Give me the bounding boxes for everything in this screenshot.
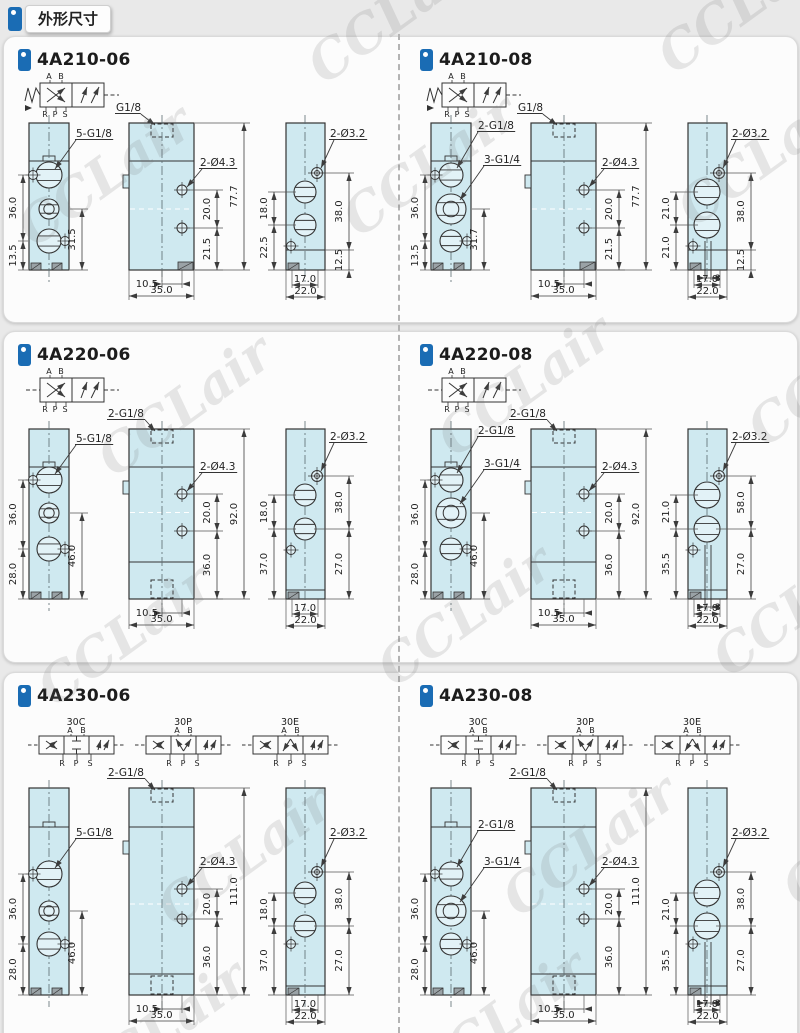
port-letter: P [455, 405, 460, 414]
dim-text: 18.0 [259, 197, 270, 219]
port-label: 2-G1/8 [510, 767, 546, 779]
model-number: 4A220-08 [439, 345, 533, 365]
right-view: 2-Ø3.218.037.038.027.017.022.0 [259, 780, 367, 1025]
valve-symbol: ABRPS [428, 367, 521, 414]
port-letter: A [46, 367, 52, 376]
middle-view: 2-G1/82-Ø4.320.036.0111.010.535.0 [107, 767, 250, 1025]
panel-row: 4A230-06 30CABRPS30PABRPS30EABRPS36.028.… [3, 672, 798, 1033]
dim-text: 77.7 [631, 185, 642, 207]
port-label: 5-G1/8 [76, 433, 112, 445]
port-letter: P [53, 405, 58, 414]
dim-text: 35.0 [552, 285, 574, 296]
dimension-drawing: ABRPS36.028.046.05-G1/82-G1/82-Ø4.320.03… [4, 332, 400, 662]
model-number: 4A210-06 [37, 50, 131, 70]
port-label: 2-Ø4.3 [602, 461, 637, 473]
port-letter: R [675, 759, 681, 768]
dim-text: 35.5 [661, 553, 672, 575]
dim-text: 17.0 [696, 999, 718, 1010]
model-bullet-icon [18, 344, 31, 366]
dim-text: 35.5 [661, 949, 672, 971]
dim-text: 37.0 [259, 553, 270, 575]
dim-text: 17.0 [294, 603, 316, 614]
port-label: 2-Ø4.3 [200, 461, 235, 473]
valve-panel: 4A210-08 ABRPS36.013.531.72-G1/83-G1/4G1… [406, 37, 797, 322]
port-letter: R [59, 759, 65, 768]
port-letter: R [42, 405, 48, 414]
dim-text: 22.0 [294, 286, 316, 297]
port-label: 3-G1/4 [484, 856, 520, 868]
port-label: 3-G1/4 [484, 458, 520, 470]
port-letter: S [596, 759, 601, 768]
dim-text: 92.0 [229, 503, 240, 525]
valve-panel: 4A220-06 ABRPS36.028.046.05-G1/82-G1/82-… [4, 332, 400, 662]
middle-view: G1/82-Ø4.320.021.577.710.535.0 [517, 102, 652, 300]
dim-text: 36.0 [8, 197, 19, 219]
port-letter: B [589, 726, 595, 735]
port-letter: A [448, 367, 454, 376]
port-label: 2-Ø3.2 [330, 431, 365, 443]
dim-text: 21.0 [661, 197, 672, 219]
dim-text: 20.0 [604, 501, 615, 523]
port-label: 2-Ø4.3 [602, 856, 637, 868]
port-label: 2-Ø3.2 [330, 827, 365, 839]
middle-view: 2-G1/82-Ø4.320.036.0111.010.535.0 [509, 767, 652, 1025]
dim-text: 38.0 [334, 200, 345, 222]
port-letter: S [301, 759, 306, 768]
port-label: 2-Ø3.2 [330, 128, 365, 140]
dim-text: 20.0 [202, 893, 213, 915]
dim-text: 17.0 [696, 603, 718, 614]
dim-text: 77.7 [229, 185, 240, 207]
dim-text: 27.0 [334, 553, 345, 575]
dimension-drawing: ABRPS36.013.531.55-G1/8G1/82-Ø4.320.021.… [4, 37, 400, 322]
port-letter: R [568, 759, 574, 768]
port-letter: S [489, 759, 494, 768]
bullet-dot [21, 52, 26, 57]
panel-title: 4A210-08 [420, 49, 533, 71]
dim-text: 28.0 [8, 563, 19, 585]
right-view: 2-Ø3.221.035.558.027.0317.022.0 [661, 421, 769, 629]
dim-text: 38.0 [736, 200, 747, 222]
dim-text: 37.0 [259, 949, 270, 971]
valve-symbol: ABRPS [427, 72, 521, 119]
model-bullet-icon [420, 685, 433, 707]
model-bullet-icon [420, 49, 433, 71]
dim-text: 35.0 [552, 1010, 574, 1021]
model-number: 4A230-08 [439, 686, 533, 706]
valve-symbol: 30CABRPS30PABRPS30EABRPS [430, 717, 741, 768]
dim-text: 35.0 [150, 614, 172, 625]
bullet-dot [423, 688, 428, 693]
section-title-box: 外形尺寸 [25, 5, 111, 33]
port-letter: P [53, 110, 58, 119]
dim-text: 28.0 [8, 958, 19, 980]
left-view: 36.028.046.05-G1/8 [8, 780, 113, 1007]
port-letter: S [87, 759, 92, 768]
dim-text: 17.0 [696, 274, 718, 285]
dim-text: 22.0 [696, 615, 718, 626]
dimension-drawing: 30CABRPS30PABRPS30EABRPS36.028.046.02-G1… [406, 673, 797, 1033]
dim-text: 21.5 [202, 238, 213, 260]
bullet-dot [11, 10, 16, 15]
dim-text: 46.0 [67, 545, 78, 567]
dim-text: 36.0 [202, 554, 213, 576]
port-label: 2-Ø3.2 [732, 128, 767, 140]
port-label: G1/8 [518, 102, 543, 114]
port-letter: B [460, 72, 466, 81]
port-letter: A [448, 72, 454, 81]
valve-panel: 4A230-06 30CABRPS30PABRPS30EABRPS36.028.… [4, 673, 400, 1033]
dim-text: 12.5 [334, 249, 345, 271]
port-letter: B [696, 726, 702, 735]
dim-text: 12.5 [736, 249, 747, 271]
dim-text: 21.5 [604, 238, 615, 260]
dim-text: 17.0 [294, 274, 316, 285]
dim-text: 111.0 [631, 877, 642, 906]
valve-panel: 4A210-06 ABRPS36.013.531.55-G1/8G1/82-Ø4… [4, 37, 400, 322]
right-view: 2-Ø3.218.022.538.012.517.022.0 [259, 115, 367, 300]
dim-text: 22.5 [259, 236, 270, 258]
model-bullet-icon [18, 49, 31, 71]
dim-text: 46.0 [469, 942, 480, 964]
dim-text: 27.0 [736, 949, 747, 971]
dim-text: 36.0 [8, 503, 19, 525]
panel-title: 4A210-06 [18, 49, 131, 71]
model-number: 4A230-06 [37, 686, 131, 706]
bullet-dot [423, 347, 428, 352]
port-letter: B [58, 367, 64, 376]
middle-view: 2-G1/82-Ø4.320.036.092.010.535.0 [509, 408, 652, 629]
port-label: 2-G1/8 [478, 120, 514, 132]
dim-text: 38.0 [334, 491, 345, 513]
bullet-dot [423, 52, 428, 57]
port-letter: P [690, 759, 695, 768]
port-letter: R [444, 405, 450, 414]
middle-view: 2-G1/82-Ø4.320.036.092.010.535.0 [107, 408, 250, 629]
right-view: 2-Ø3.221.035.538.027.0317.022.0 [661, 780, 769, 1025]
model-number: 4A210-08 [439, 50, 533, 70]
port-letter: R [461, 759, 467, 768]
port-label: 2-Ø4.3 [602, 157, 637, 169]
port-letter: B [80, 726, 86, 735]
port-letter: P [476, 759, 481, 768]
dim-text: 20.0 [202, 198, 213, 220]
dim-text: 46.0 [469, 545, 480, 567]
dim-text: 35.0 [552, 614, 574, 625]
dim-text: 92.0 [631, 503, 642, 525]
port-letter: S [464, 405, 469, 414]
right-view: 2-Ø3.221.021.038.012.5317.022.0 [661, 115, 769, 300]
port-letter: S [464, 110, 469, 119]
port-label: 5-G1/8 [76, 827, 112, 839]
left-view: 36.028.046.05-G1/8 [8, 421, 113, 611]
dim-text: 31.7 [469, 228, 480, 250]
port-letter: A [576, 726, 582, 735]
valve-symbol: ABRPS [25, 72, 119, 119]
dim-text: 20.0 [604, 893, 615, 915]
port-letter: B [187, 726, 193, 735]
panel-row: 4A220-06 ABRPS36.028.046.05-G1/82-G1/82-… [3, 331, 798, 663]
port-label: 2-Ø3.2 [732, 827, 767, 839]
port-letter: A [46, 72, 52, 81]
panel-row: 4A210-06 ABRPS36.013.531.55-G1/8G1/82-Ø4… [3, 36, 798, 323]
port-label: 2-G1/8 [478, 819, 514, 831]
dim-text: 28.0 [410, 563, 421, 585]
section-title: 外形尺寸 [38, 10, 98, 28]
dim-text: 36.0 [604, 554, 615, 576]
dim-text: 28.0 [410, 958, 421, 980]
dim-text: 18.0 [259, 501, 270, 523]
dimension-drawing: 30CABRPS30PABRPS30EABRPS36.028.046.05-G1… [4, 673, 400, 1033]
dim-text: 18.0 [259, 898, 270, 920]
bullet-dot [21, 347, 26, 352]
valve-symbol: 30CABRPS30PABRPS30EABRPS [28, 717, 339, 768]
valve-panel: 4A220-08 ABRPS36.028.046.02-G1/83-G1/42-… [406, 332, 797, 662]
dim-text: 22.0 [696, 1011, 718, 1022]
dim-text: 111.0 [229, 877, 240, 906]
dim-text: 27.0 [736, 553, 747, 575]
datasheet-page: 外形尺寸 4A210-06 ABRPS36.013.531.55-G1/8G1/… [0, 0, 800, 1033]
dim-text: 21.0 [661, 501, 672, 523]
column-divider [398, 34, 400, 1033]
dim-text: 21.0 [661, 236, 672, 258]
port-label: 2-Ø4.3 [200, 157, 235, 169]
port-letter: A [683, 726, 689, 735]
port-letter: B [58, 72, 64, 81]
port-label: 2-Ø3.2 [732, 431, 767, 443]
panel-title: 4A220-08 [420, 344, 533, 366]
dim-text: 17.0 [294, 999, 316, 1010]
dim-text: 31.5 [67, 228, 78, 250]
port-letter: S [703, 759, 708, 768]
port-label: 2-Ø4.3 [200, 856, 235, 868]
right-view: 2-Ø3.218.037.038.027.017.022.0 [259, 421, 367, 629]
dim-text: 36.0 [202, 946, 213, 968]
model-bullet-icon [18, 685, 31, 707]
header-bullet-icon [8, 7, 22, 31]
port-letter: R [444, 110, 450, 119]
port-letter: B [460, 367, 466, 376]
dim-text: 35.0 [150, 1010, 172, 1021]
port-label: 2-G1/8 [108, 767, 144, 779]
port-letter: A [469, 726, 475, 735]
dim-text: 20.0 [604, 198, 615, 220]
dim-text: 38.0 [736, 888, 747, 910]
dim-text: 13.5 [410, 244, 421, 266]
dim-text: 38.0 [334, 888, 345, 910]
valve-symbol: ABRPS [26, 367, 119, 414]
dim-text: 22.0 [696, 286, 718, 297]
panel-title: 4A230-08 [420, 685, 533, 707]
dim-text: 13.5 [8, 244, 19, 266]
port-letter: P [288, 759, 293, 768]
middle-view: G1/82-Ø4.320.021.577.710.535.0 [115, 102, 250, 300]
left-view: 36.013.531.72-G1/83-G1/4 [410, 115, 521, 282]
port-letter: R [42, 110, 48, 119]
left-view: 36.028.046.02-G1/83-G1/4 [410, 421, 521, 611]
left-view: 36.013.531.55-G1/8 [8, 115, 113, 282]
dim-text: 36.0 [410, 197, 421, 219]
model-number: 4A220-06 [37, 345, 131, 365]
bullet-dot [21, 688, 26, 693]
dimension-drawing: ABRPS36.028.046.02-G1/83-G1/42-G1/82-Ø4.… [406, 332, 797, 662]
port-letter: S [62, 405, 67, 414]
valve-panel: 4A230-08 30CABRPS30PABRPS30EABRPS36.028.… [406, 673, 797, 1033]
dim-text: 22.0 [294, 615, 316, 626]
dim-text: 36.0 [410, 898, 421, 920]
port-letter: R [166, 759, 172, 768]
dim-text: 36.0 [604, 946, 615, 968]
port-letter: R [273, 759, 279, 768]
port-letter: A [281, 726, 287, 735]
port-letter: B [294, 726, 300, 735]
port-letter: P [181, 759, 186, 768]
port-label: 5-G1/8 [76, 128, 112, 140]
dim-text: 36.0 [8, 898, 19, 920]
model-bullet-icon [420, 344, 433, 366]
dim-text: 36.0 [410, 503, 421, 525]
dim-text: 21.0 [661, 898, 672, 920]
dim-text: 27.0 [334, 949, 345, 971]
dim-text: 20.0 [202, 501, 213, 523]
panel-title: 4A230-06 [18, 685, 131, 707]
port-letter: P [455, 110, 460, 119]
port-label: 2-G1/8 [478, 425, 514, 437]
dim-text: 58.0 [736, 491, 747, 513]
dim-text: 22.0 [294, 1011, 316, 1022]
port-letter: A [174, 726, 180, 735]
dim-text: 46.0 [67, 942, 78, 964]
port-letter: P [74, 759, 79, 768]
port-label: G1/8 [116, 102, 141, 114]
port-letter: B [482, 726, 488, 735]
port-letter: S [194, 759, 199, 768]
port-label: 3-G1/4 [484, 154, 520, 166]
port-label: 2-G1/8 [108, 408, 144, 420]
port-letter: S [62, 110, 67, 119]
port-letter: A [67, 726, 73, 735]
dimension-drawing: ABRPS36.013.531.72-G1/83-G1/4G1/82-Ø4.32… [406, 37, 797, 322]
panel-title: 4A220-06 [18, 344, 131, 366]
section-header: 外形尺寸 [8, 5, 111, 33]
dim-text: 35.0 [150, 285, 172, 296]
port-label: 2-G1/8 [510, 408, 546, 420]
port-letter: P [583, 759, 588, 768]
left-view: 36.028.046.02-G1/83-G1/4 [410, 780, 521, 1007]
